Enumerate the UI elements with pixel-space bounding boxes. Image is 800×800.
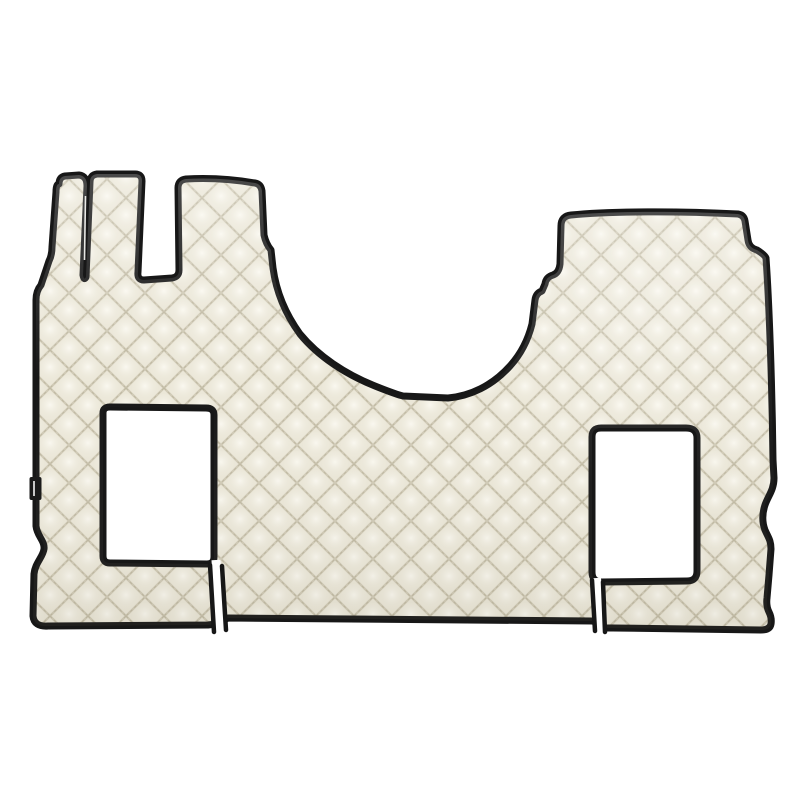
brand-tag-text-mark	[33, 481, 35, 496]
right-slit-piping-right	[603, 582, 605, 632]
brand-tag	[30, 477, 42, 500]
finger-slit-sliver	[85, 196, 86, 260]
left-slit-gap	[216, 560, 220, 634]
right-slit-piping-left	[592, 580, 595, 631]
floor-mat-illustration	[0, 0, 800, 800]
right-slit-gap	[597, 578, 601, 634]
brand-tag-body	[30, 477, 42, 500]
product-photo	[0, 0, 800, 800]
left-slit-seam	[210, 560, 226, 634]
right-slit-seam	[592, 578, 605, 634]
